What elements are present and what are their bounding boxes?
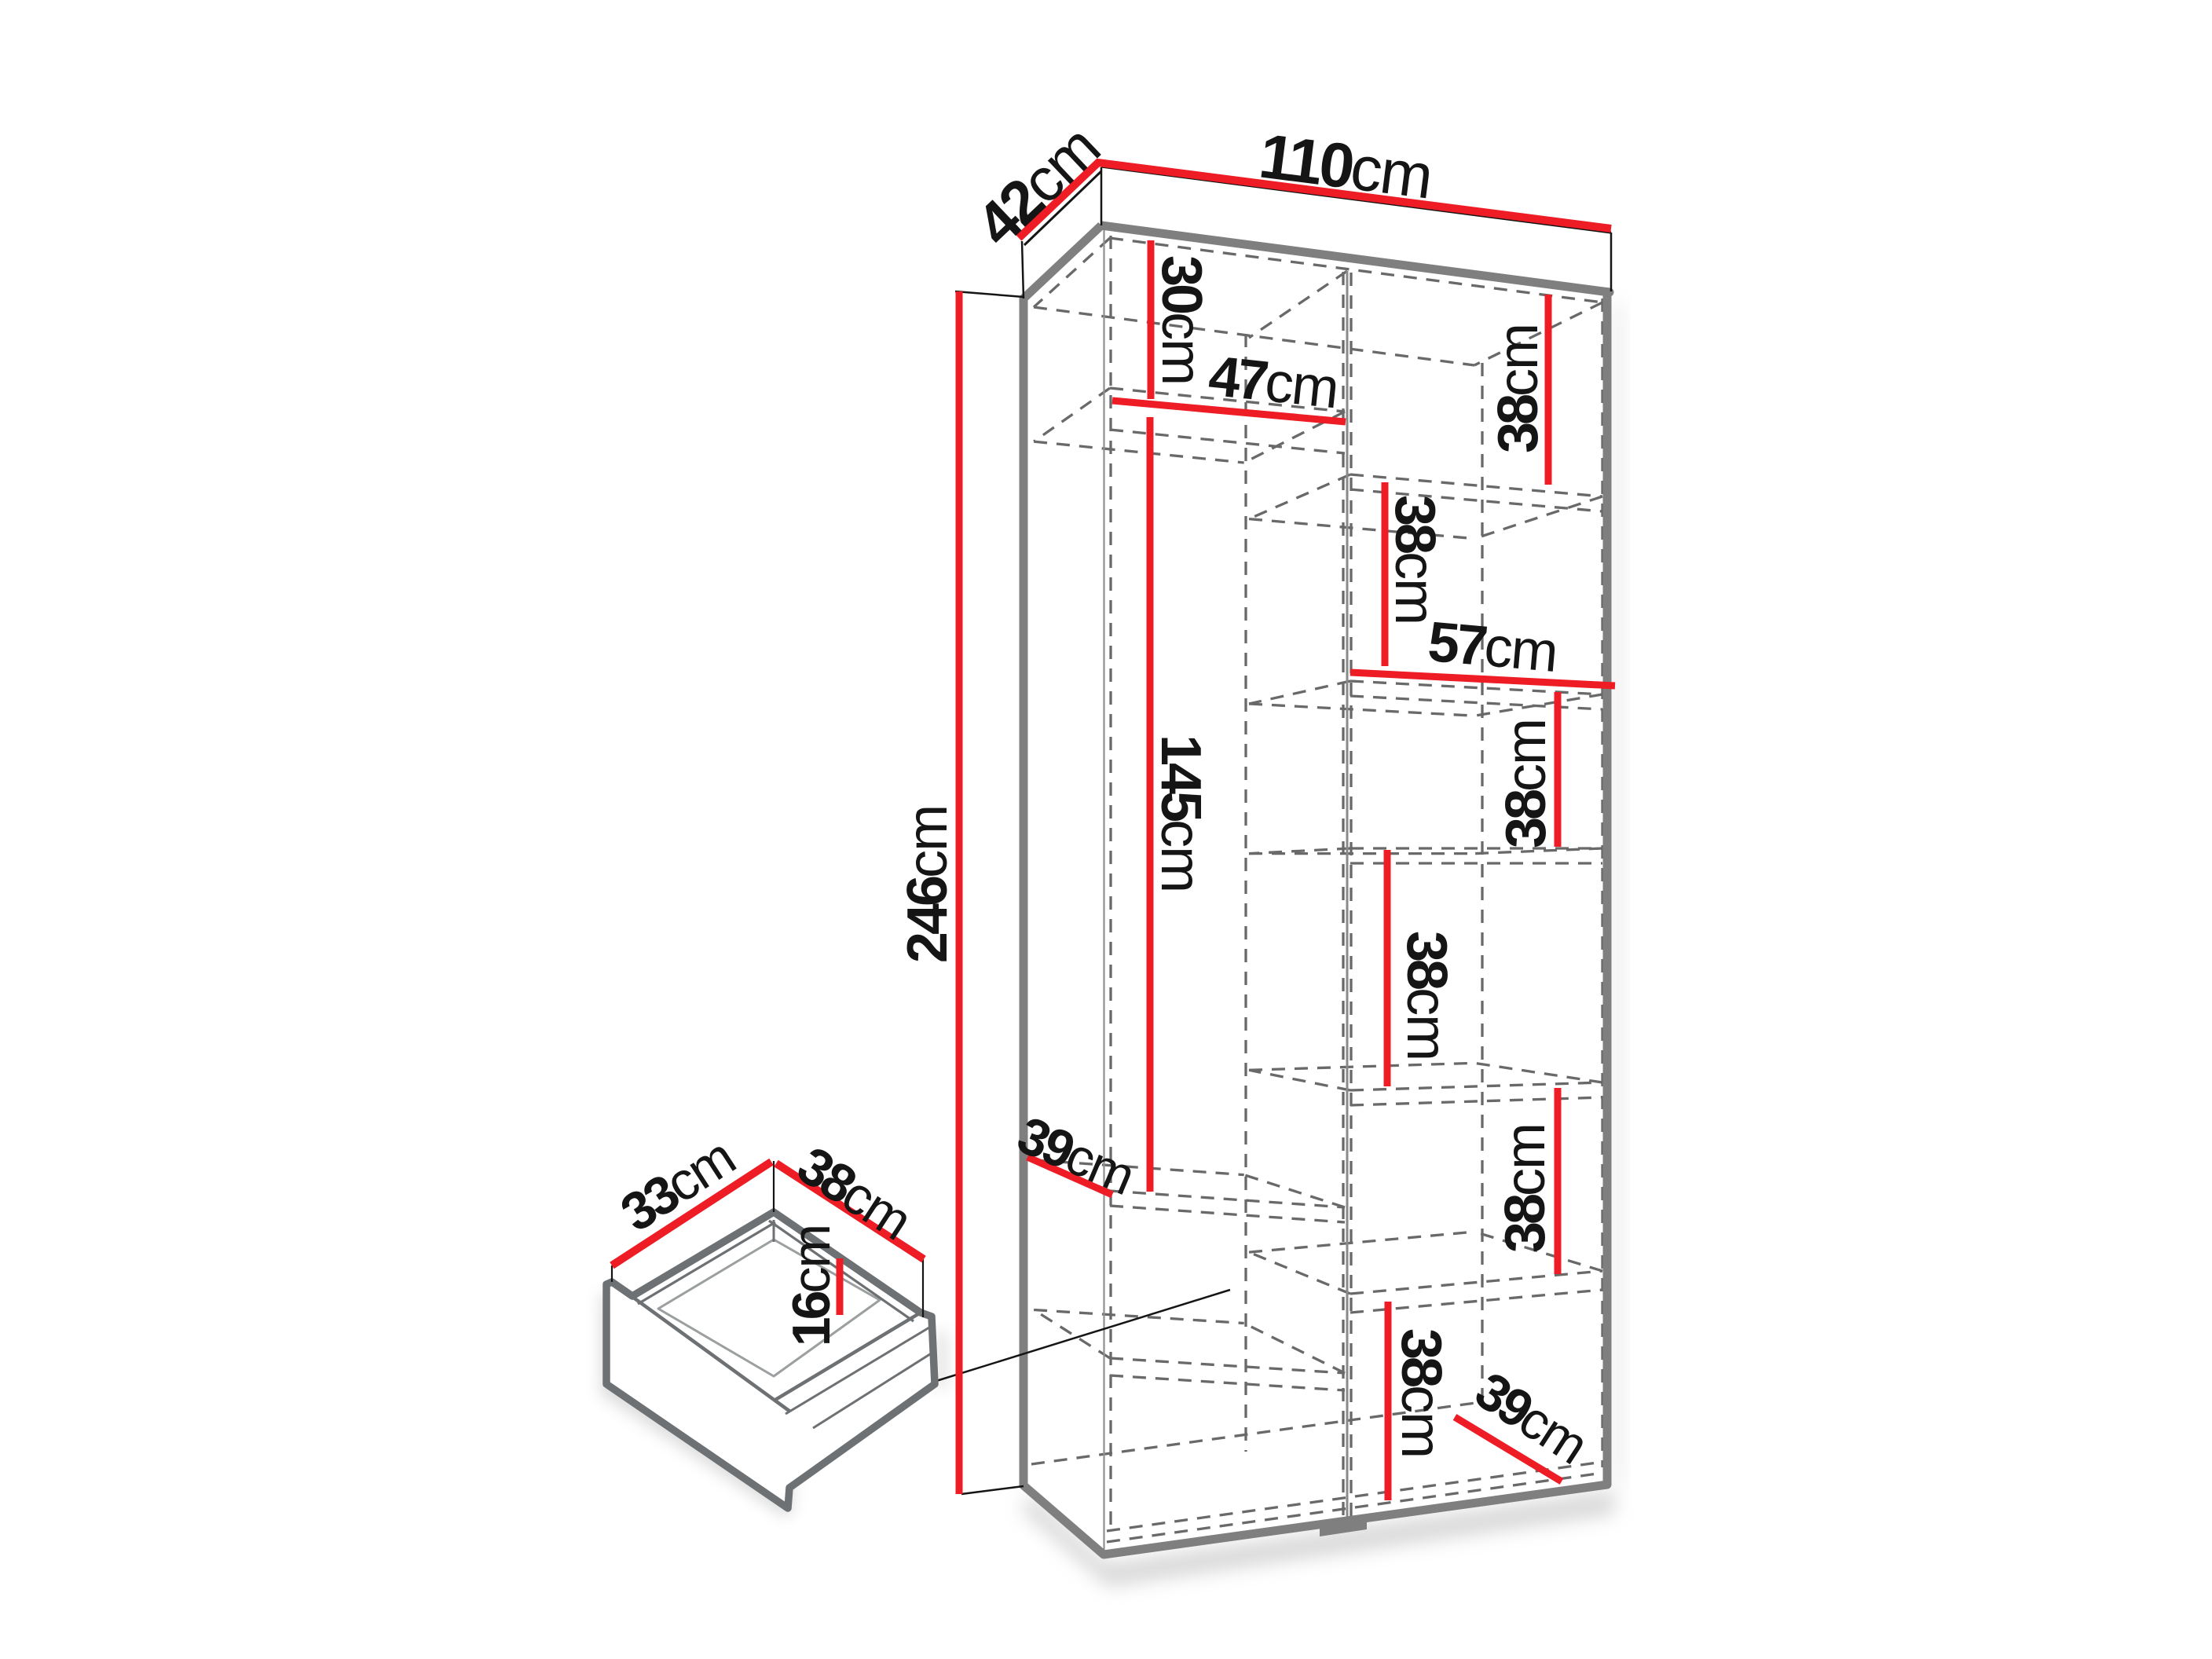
svg-text:38cm: 38cm [1390, 1328, 1452, 1457]
svg-text:38cm: 38cm [1395, 931, 1458, 1060]
svg-text:57cm: 57cm [1426, 610, 1559, 684]
svg-text:16cm: 16cm [782, 1225, 841, 1346]
svg-text:38cm: 38cm [1494, 1124, 1557, 1253]
svg-text:38cm: 38cm [1383, 495, 1446, 624]
svg-text:145cm: 145cm [1149, 734, 1212, 892]
svg-text:38cm: 38cm [1495, 720, 1558, 848]
svg-text:47cm: 47cm [1206, 345, 1341, 421]
svg-text:246cm: 246cm [896, 806, 959, 963]
svg-text:30cm: 30cm [1150, 255, 1213, 384]
svg-text:38cm: 38cm [1487, 324, 1550, 453]
